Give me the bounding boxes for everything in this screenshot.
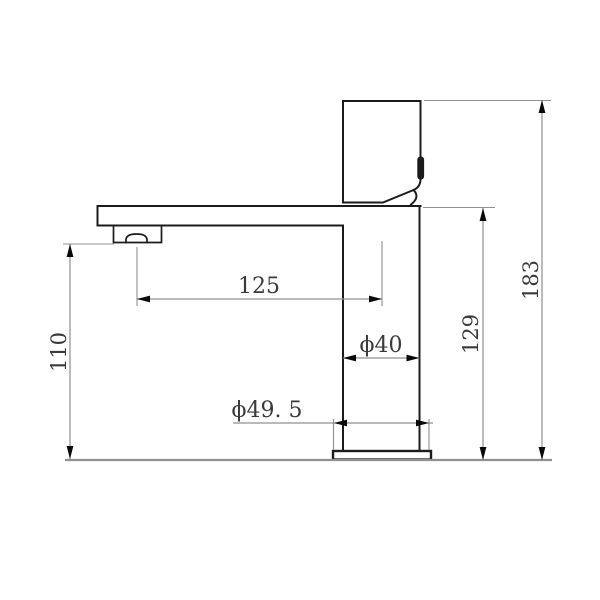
dimension-phi49-label: ϕ49. 5 xyxy=(232,398,303,423)
handle-lever-tip-arc xyxy=(411,190,416,205)
dimension-spout-reach: 125 xyxy=(137,241,382,306)
dim-phi40-arrow-right xyxy=(407,355,420,362)
dimension-129-label: 129 xyxy=(459,314,483,354)
dim-183-arrow-top xyxy=(539,100,546,113)
dim-phi40-arrow-left xyxy=(343,355,356,362)
dim-183-arrow-bottom xyxy=(539,447,546,460)
dim-125-arrow-right xyxy=(369,296,382,303)
dimension-overall-height: 183 xyxy=(424,100,551,460)
dimension-body-height: 129 xyxy=(423,208,495,461)
faucet-base xyxy=(333,451,431,460)
dim-110-arrow-bottom xyxy=(67,446,74,459)
handle-button xyxy=(417,157,424,180)
faucet-spout xyxy=(98,206,421,226)
technical-drawing-canvas: 125 110 129 183 ϕ40 ϕ49. 5 xyxy=(0,0,600,600)
dim-110-arrow-top xyxy=(67,244,74,257)
dim-129-arrow-top xyxy=(480,208,487,221)
dim-129-arrow-bottom xyxy=(480,447,487,460)
faucet-handle xyxy=(343,101,421,203)
dimension-body-diameter: ϕ40 xyxy=(343,333,420,361)
dim-phi49-arrow-left xyxy=(334,420,347,427)
dimension-base-diameter: ϕ49. 5 xyxy=(232,398,433,450)
dimension-183-label: 183 xyxy=(519,260,543,300)
dimension-125-label: 125 xyxy=(238,274,280,299)
faucet-body-column xyxy=(343,207,420,451)
dim-phi49-arrow-right xyxy=(416,420,429,427)
dimension-phi40-label: ϕ40 xyxy=(360,333,403,358)
aerator-dome xyxy=(126,234,147,243)
dim-125-arrow-left xyxy=(137,296,150,303)
dimension-spout-outlet-height: 110 xyxy=(47,244,114,459)
faucet-dimension-drawing: 125 110 129 183 ϕ40 ϕ49. 5 xyxy=(0,0,600,600)
dimension-110-label: 110 xyxy=(47,332,71,372)
